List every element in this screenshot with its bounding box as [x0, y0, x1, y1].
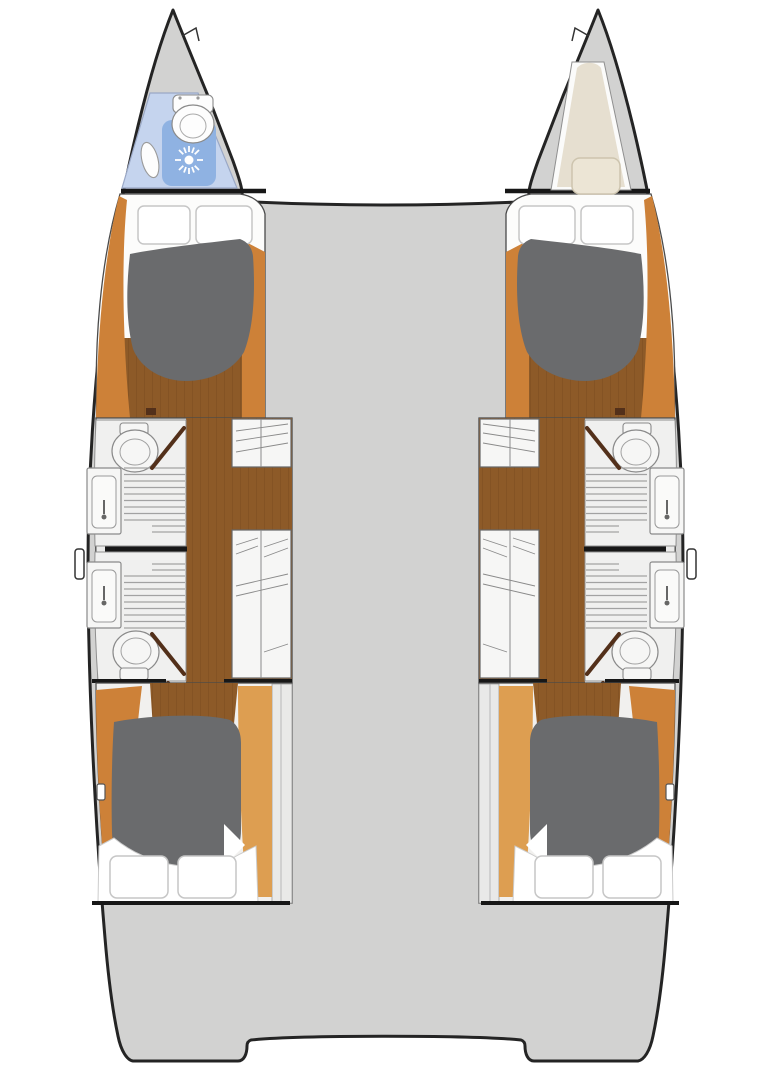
- toilet-button: [196, 96, 199, 99]
- toilet-icon: [172, 105, 214, 143]
- berth-pillow: [572, 158, 620, 194]
- floor-plan: [0, 0, 771, 1080]
- toilet-button: [178, 96, 181, 99]
- shower-drain-icon: [175, 146, 203, 174]
